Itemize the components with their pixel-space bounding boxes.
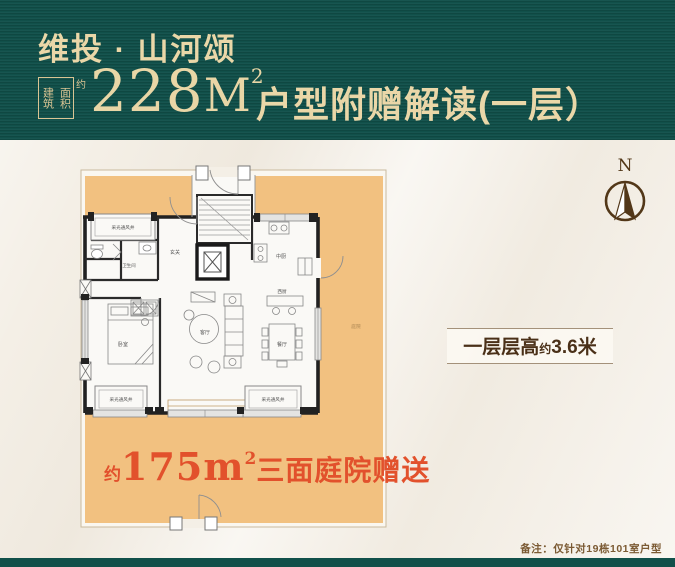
room-label-foyer: 玄关 xyxy=(170,249,180,256)
header-band: 维投 · 山河颂 建筑 面积 约 228M2 户型附赠解读(一层） xyxy=(0,0,675,140)
promo-value: 175m xyxy=(121,444,245,489)
floor-height-approx: 约 xyxy=(539,342,551,356)
area-unit: M xyxy=(204,68,251,122)
seal-row2: 面积 xyxy=(59,87,71,109)
elevator xyxy=(197,245,228,279)
promo-superscript: 2 xyxy=(245,449,257,469)
seal-row1: 建筑 xyxy=(42,87,54,109)
lightwell-top-left: 采光通风井 xyxy=(88,212,157,240)
compass: N xyxy=(601,157,649,230)
room-label-lightwell-3: 采光通风井 xyxy=(262,396,285,403)
room-label-bath: 卫生间 xyxy=(122,262,135,269)
footnote: 备注：仅针对19栋101室户型 xyxy=(520,541,662,556)
compass-north-label: N xyxy=(601,157,649,175)
footer-band xyxy=(0,558,675,567)
staircase xyxy=(197,195,252,243)
floor-height-badge: 一层层高约3.6米 xyxy=(447,328,613,364)
seal-approx: 约 xyxy=(76,76,86,91)
page-title: 户型附赠解读(一层） xyxy=(256,76,602,128)
promo-text: 三面庭院赠送 xyxy=(256,454,430,487)
area-figure: 228M2 xyxy=(90,60,264,122)
compass-icon xyxy=(601,175,649,225)
room-label-dining: 餐厅 xyxy=(277,341,287,348)
room-label-living: 客厅 xyxy=(200,329,210,336)
room-label-kitchen-cn: 中厨 xyxy=(276,253,286,260)
poster: 维投 · 山河颂 建筑 面积 约 228M2 户型附赠解读(一层） xyxy=(0,0,675,567)
room-label-courtyard: 庭院 xyxy=(351,323,361,330)
lightwell-bottom-left: 采光通风井 xyxy=(95,386,147,412)
area-seal: 建筑 面积 xyxy=(38,77,74,119)
room-label-bedroom: 卧室 xyxy=(118,341,128,348)
floor-height-prefix: 一层层高 xyxy=(463,337,539,358)
courtyard-promo: 约175m2三面庭院赠送 xyxy=(104,444,430,489)
room-label-lightwell-2: 采光通风井 xyxy=(110,396,133,403)
floor-height-value: 3.6米 xyxy=(551,337,596,358)
promo-approx: 约 xyxy=(104,465,121,485)
room-label-lightwell-1: 采光通风井 xyxy=(112,224,135,231)
area-value: 228 xyxy=(90,57,204,125)
lightwell-bottom-right: 采光通风井 xyxy=(245,386,301,412)
